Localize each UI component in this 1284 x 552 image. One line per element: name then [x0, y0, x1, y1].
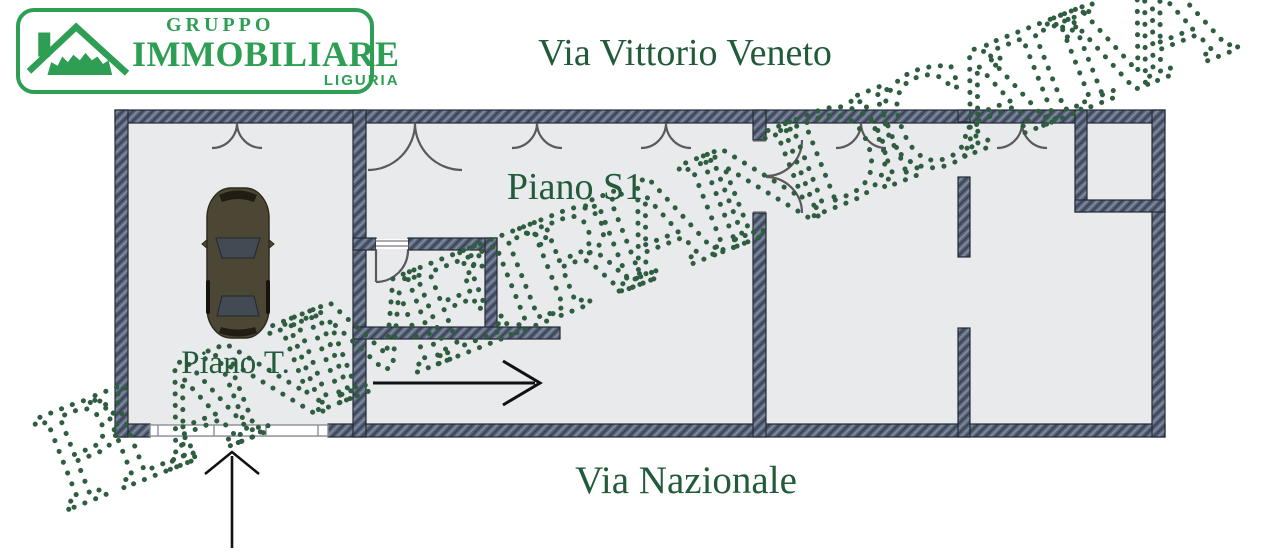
- logo-line-immobiliare: IMMOBILIARE: [132, 36, 400, 72]
- house-skyline-icon: [24, 14, 132, 88]
- agency-logo: GRUPPO IMMOBILIARE LIGURIA: [16, 8, 374, 94]
- logo-line-gruppo: GRUPPO: [166, 15, 400, 35]
- closet-wall-bottom: [1075, 200, 1165, 212]
- street-name-top: Via Vittorio Veneto: [420, 31, 950, 75]
- outer-wall-bottom: [328, 424, 1165, 437]
- stair-room-wall-top-a: [353, 238, 376, 250]
- outer-wall-right: [1152, 110, 1165, 437]
- floor-plan-page: PLANIMETRIA INDICATIVA GRUPPO IMMOBILIAR…: [0, 0, 1284, 552]
- floor-label-t: Piano T.: [168, 345, 303, 382]
- wall-room3-room4-c: [958, 328, 970, 437]
- floor-label-s1: Piano S1: [480, 165, 670, 209]
- street-name-bottom: Via Nazionale: [436, 458, 936, 503]
- logo-line-liguria: LIGURIA: [132, 73, 400, 88]
